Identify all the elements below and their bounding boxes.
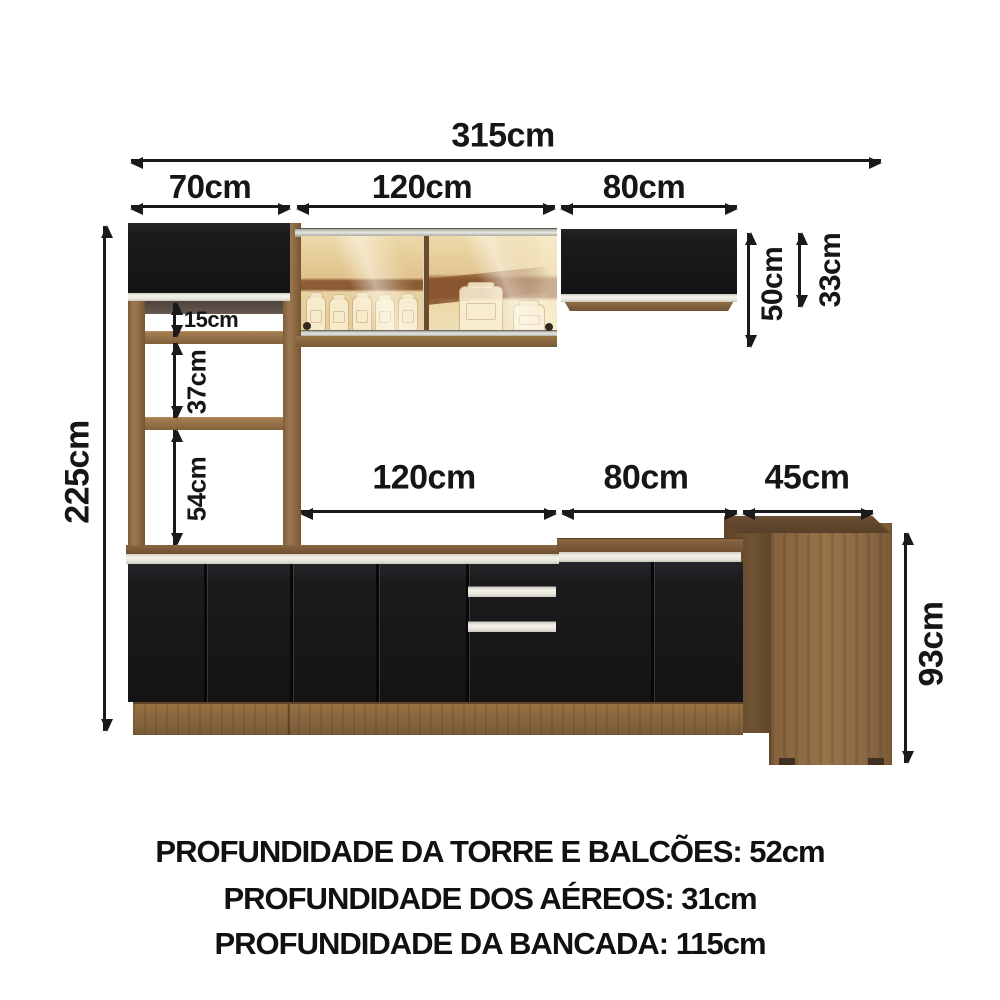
tower-left-panel <box>128 301 145 553</box>
dim-tower-width-arrow <box>131 205 290 208</box>
base-cabinet-doors-right <box>559 562 743 702</box>
dim-shelf-gap3-arrow <box>173 430 176 545</box>
glass-cabinet-bottom-frame <box>295 336 557 347</box>
dim-shelf-gap1-arrow <box>173 303 176 337</box>
bancada-foot <box>868 758 884 765</box>
right-aereo-handle <box>561 294 737 302</box>
dim-aereo-total-height-arrow <box>747 233 750 347</box>
glass-reflection <box>429 236 557 331</box>
door-gap <box>466 564 469 702</box>
base-counter-wood-main <box>126 545 560 554</box>
right-aereo-door <box>561 229 737 294</box>
depth-note-aereos: PROFUNDIDADE DOS AÉREOS: 31cm <box>0 881 980 917</box>
glass-door-knob-icon <box>545 323 553 331</box>
dim-shelf-gap1-label: 15cm <box>184 307 238 333</box>
dim-aereo-door-height-label: 33cm <box>814 233 848 308</box>
drawer-handle <box>468 586 556 597</box>
glass-reflection <box>301 236 423 331</box>
dim-shelf-gap2-arrow <box>173 343 176 418</box>
dim-total-height-label: 225cm <box>59 420 98 523</box>
dim-shelf-gap3-label: 54cm <box>182 457 213 522</box>
dim-aereo-right-width-arrow <box>561 205 737 208</box>
dim-bancada-width-arrow <box>743 510 873 513</box>
door-gap <box>290 564 293 702</box>
dim-total-width-label: 315cm <box>451 117 554 156</box>
base-counter-edge-main <box>126 554 560 564</box>
glass-cabinet-left-door <box>301 236 423 331</box>
tower-shelf <box>145 417 283 430</box>
plinth-seam <box>288 704 290 735</box>
door-gap <box>376 564 379 702</box>
right-aereo-underside <box>563 302 735 311</box>
bancada-front-panel <box>769 523 892 765</box>
dim-balcao2-width-label: 80cm <box>604 459 689 498</box>
dim-aereo-glass-width-arrow <box>297 205 555 208</box>
base-plinth <box>133 702 743 735</box>
drawer-handle <box>468 621 556 632</box>
bancada-foot <box>779 758 795 765</box>
base-counter-edge-right <box>559 552 741 562</box>
dim-bancada-width-label: 45cm <box>765 459 850 498</box>
dim-tower-width-label: 70cm <box>169 168 251 206</box>
glass-cabinet-right-door <box>429 236 557 331</box>
depth-note-tower-balcoes: PROFUNDIDADE DA TORRE E BALCÕES: 52cm <box>0 834 980 870</box>
dim-total-width-arrow <box>131 159 881 162</box>
tower-upper-cabinet-handle <box>128 293 290 301</box>
dim-aereo-glass-width-label: 120cm <box>372 168 472 206</box>
dim-aereo-right-width-label: 80cm <box>603 168 685 206</box>
dim-bancada-height-label: 93cm <box>913 602 952 687</box>
depth-note-bancada: PROFUNDIDADE DA BANCADA: 115cm <box>0 926 980 962</box>
glass-door-knob-icon <box>303 322 311 330</box>
tower-upper-cabinet-door <box>128 223 290 293</box>
dim-total-height-arrow <box>103 226 106 731</box>
dim-balcao2-width-arrow <box>562 510 737 513</box>
base-cabinet-doors-main <box>128 564 560 702</box>
door-gap <box>651 562 654 702</box>
dim-bancada-height-arrow <box>904 533 907 763</box>
dim-balcao1-width-label: 120cm <box>372 459 475 498</box>
door-gap <box>204 564 207 702</box>
kitchen-dimension-diagram: 315cm 70cm 120cm 80cm 50cm 33cm 225cm 15… <box>0 0 1000 1000</box>
dim-aereo-total-height-label: 50cm <box>756 247 790 322</box>
dim-shelf-gap2-label: 37cm <box>182 350 213 415</box>
dim-aereo-door-height-arrow <box>798 233 801 307</box>
base-counter-wood-right <box>557 538 743 553</box>
dim-balcao1-width-arrow <box>301 510 556 513</box>
